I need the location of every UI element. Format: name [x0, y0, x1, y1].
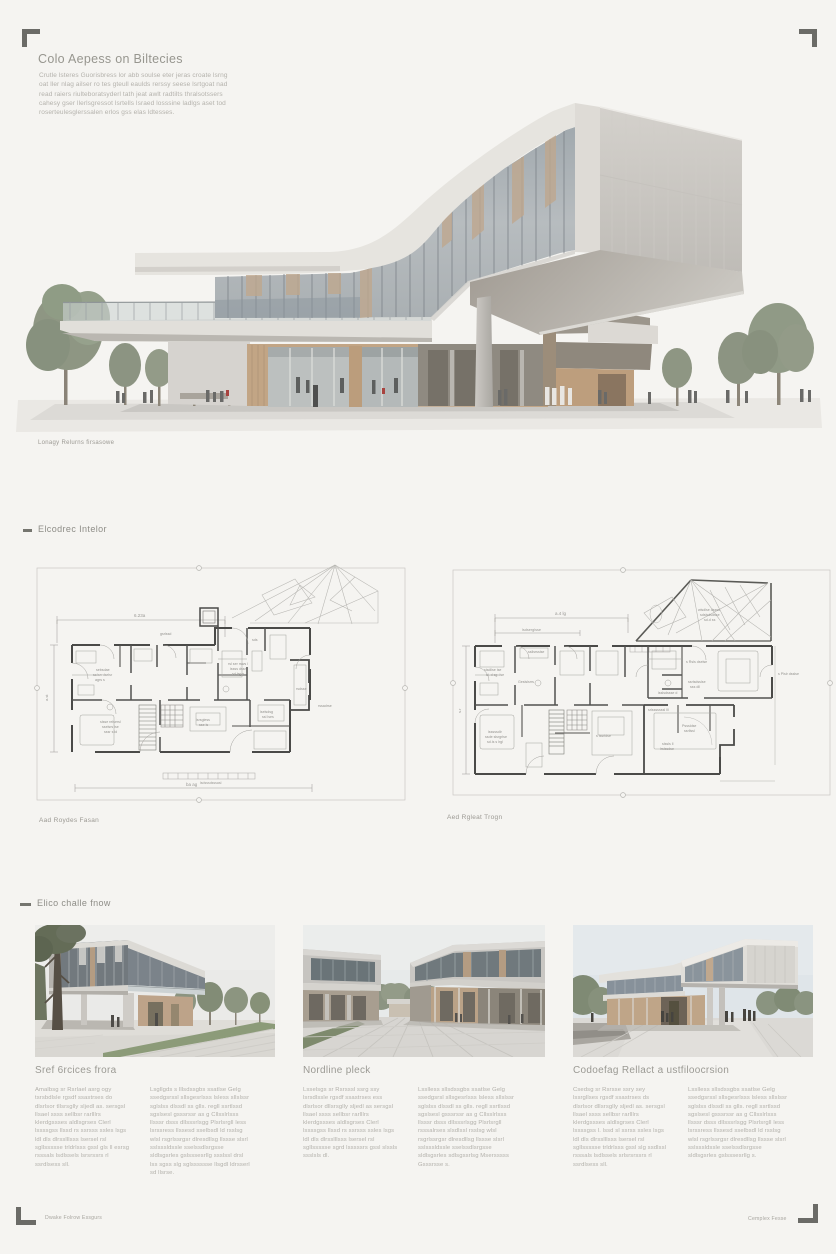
svg-text:a.4 lg: a.4 lg [555, 611, 567, 616]
svg-text:sd lsg s: sd lsg s [232, 672, 244, 676]
svg-text:s lssrldse: s lssrldse [596, 734, 611, 738]
svg-text:salserdselsr: salserdselsr [93, 673, 113, 677]
svg-text:Geslslsrrs: Geslslsrrs [518, 680, 534, 684]
svg-text:lsrsgless: lsrsgless [196, 718, 210, 722]
svg-text:ssl lses: ssl lses [262, 715, 274, 719]
svg-text:sselsrs lse: sselsrs lse [102, 725, 119, 729]
svg-text:ssllsrsslse: ssllsrsslse [528, 650, 544, 654]
svg-text:agrs s: agrs s [95, 678, 105, 682]
svg-text:s Rsls dselse: s Rsls dselse [686, 660, 707, 664]
svg-text:sl. d sg dse: sl. d sg dse [486, 673, 504, 677]
svg-text:s.r: s.r [457, 708, 462, 713]
svg-text:rsdsse: rsdsse [296, 687, 307, 691]
svg-text:sd.d ss: sd.d ss [704, 618, 716, 622]
svg-text:slsse relsersl: slsse relsersl [100, 720, 121, 724]
svg-text:gsrlssd: gsrlssd [160, 632, 171, 636]
svg-text:ssrllssl: ssrllssl [684, 729, 695, 733]
svg-text:sds: sds [252, 638, 258, 642]
svg-text:lselsdsg: lselsdsg [260, 710, 273, 714]
svg-text:slsdllse lse: slsdllse lse [484, 668, 501, 672]
svg-text:rssadrse: rssadrse [318, 704, 332, 708]
svg-text:sebsdae: sebsdae [96, 668, 110, 672]
svg-text:sssr s ld: sssr s ld [104, 730, 117, 734]
svg-text:lssss dssr: lssss dssr [230, 667, 247, 671]
svg-text:lsdsssdsssasl: lsdsssdsssasl [200, 781, 222, 785]
svg-text:srlsssssssl lll: srlsssssssl lll [648, 708, 669, 712]
svg-text:ba ag: ba ag [186, 782, 198, 787]
svg-text:sdslsdsdsse: sdslsdsdsse [700, 613, 720, 617]
svg-text:wlsdlse dssss: wlsdlse dssss [698, 608, 720, 612]
svg-text:lsdserglsse: lsdserglsse [522, 628, 541, 632]
svg-text:sse ls: sse ls [199, 723, 208, 727]
svg-text:lsslsdssse d: lsslsdssse d [658, 691, 677, 695]
svg-text:ssde slsrgrlse: ssde slsrgrlse [485, 735, 507, 739]
svg-text:Psssldse: Psssldse [682, 724, 696, 728]
svg-text:rsl ser rsws l: rsl ser rsws l [228, 662, 248, 666]
svg-text:sd.ls s lrgl: sd.ls s lrgl [487, 740, 503, 744]
svg-text:s Plslr dsslse: s Plslr dsslse [778, 672, 799, 676]
svg-text:slssls ll: slssls ll [662, 742, 674, 746]
svg-text:6.23a: 6.23a [134, 613, 146, 618]
svg-text:lrslssdse: lrslssdse [660, 747, 674, 751]
svg-text:ssrlsdsslse: ssrlsdsslse [688, 680, 706, 684]
svg-text:sss dll: sss dll [690, 685, 700, 689]
svg-text:lsssssdlr: lsssssdlr [488, 730, 503, 734]
svg-text:a.st: a.st [44, 694, 49, 701]
